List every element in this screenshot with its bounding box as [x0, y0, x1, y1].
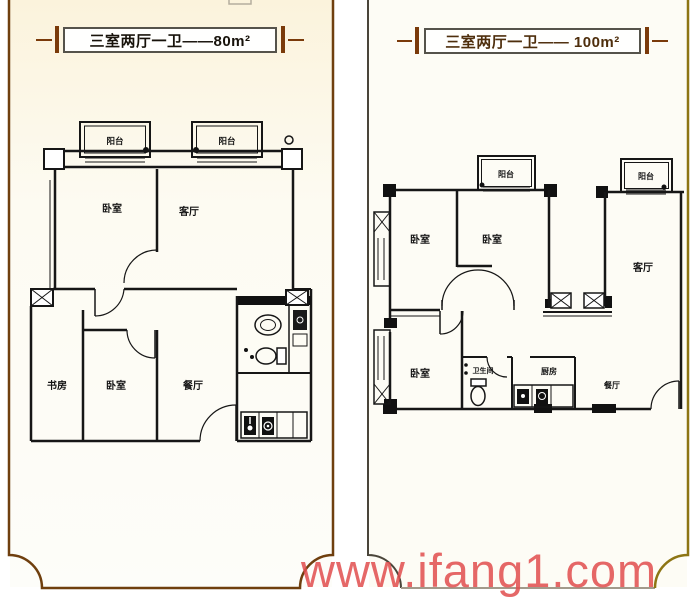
- left-panel[interactable]: 阳台 阳台 卧室 客厅 书房 卧室 餐厅: [9, 0, 333, 588]
- right-panel-background: [369, 0, 687, 587]
- room-label-bedroom: 卧室: [482, 233, 502, 246]
- room-label-study: 书房: [47, 379, 67, 392]
- room-label-bedroom: 卧室: [410, 367, 430, 380]
- room-label-dining: 餐厅: [603, 380, 620, 390]
- right-panel[interactable]: 阳台 阳台 卧室 卧室 客厅 卧室 卫生间 厨房 餐厅: [368, 0, 688, 588]
- sink-icon: [517, 389, 529, 404]
- room-label-balcony: 阳台: [218, 136, 236, 146]
- screenshot-root: 阳台 阳台 卧室 客厅 书房 卧室 餐厅: [0, 0, 700, 600]
- right-plan-title-box: 三室两厅一卫—— 100m²: [424, 28, 641, 54]
- room-label-bathroom: 卫生间: [473, 366, 494, 375]
- left-shaft-left: [31, 289, 53, 306]
- left-plan-title: 三室两厅一卫——80m²: [89, 30, 250, 51]
- site-watermark: www.ifang1.com: [301, 543, 657, 598]
- room-label-balcony: 阳台: [498, 169, 514, 179]
- room-label-bedroom: 卧室: [410, 233, 430, 246]
- stove-icon: [262, 417, 274, 435]
- room-label-bedroom: 卧室: [102, 202, 122, 215]
- room-label-living: 客厅: [178, 205, 199, 218]
- stove-icon: [536, 389, 548, 404]
- room-label-dining: 餐厅: [182, 379, 203, 392]
- left-shaft-right: [286, 290, 308, 305]
- left-panel-background: [10, 0, 332, 587]
- room-label-balcony: 阳台: [106, 136, 124, 146]
- room-label-bedroom: 卧室: [106, 379, 126, 392]
- right-plan-title: 三室两厅一卫—— 100m²: [445, 31, 620, 52]
- floorplan-canvas: 阳台 阳台 卧室 客厅 书房 卧室 餐厅: [0, 0, 700, 600]
- sink-icon: [244, 416, 256, 435]
- toilet-tank: [471, 379, 486, 386]
- room-label-living: 客厅: [632, 261, 653, 274]
- room-label-balcony: 阳台: [638, 171, 654, 181]
- left-plan-title-box: 三室两厅一卫——80m²: [63, 27, 277, 53]
- room-label-kitchen: 厨房: [541, 366, 557, 376]
